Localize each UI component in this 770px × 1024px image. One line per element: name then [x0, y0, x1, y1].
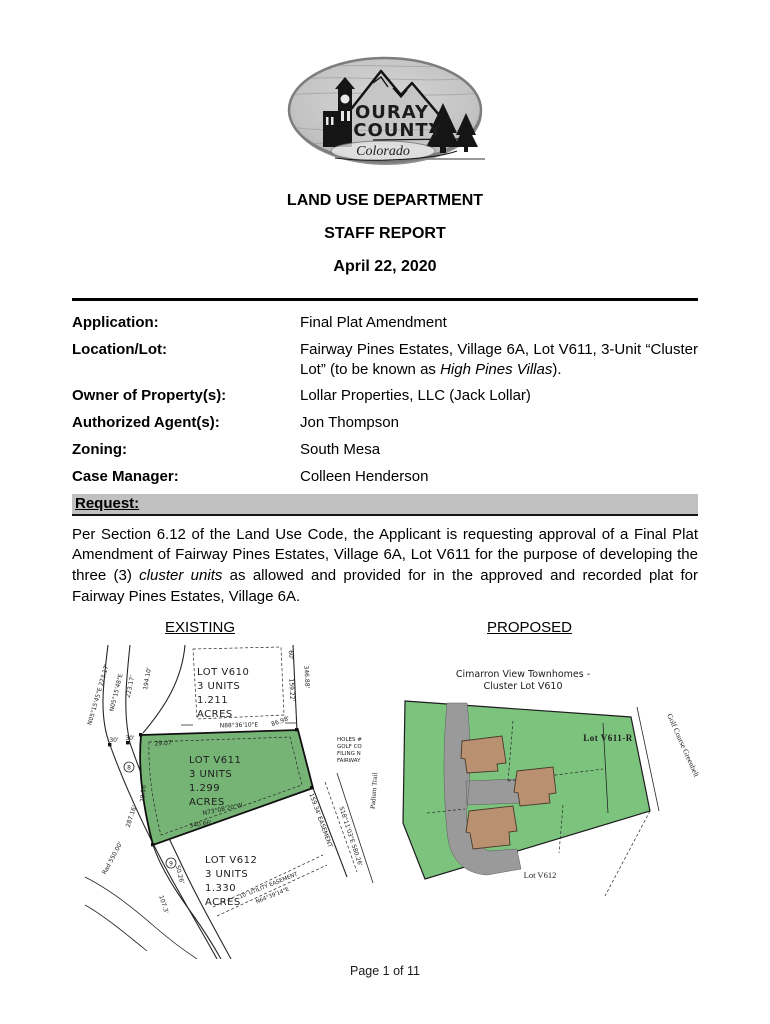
- info-row-case-manager: Case Manager: Colleen Henderson: [72, 467, 698, 487]
- info-label: Application:: [72, 313, 300, 333]
- lot-v612-acres: ACRES: [205, 897, 241, 908]
- existing-map-heading: EXISTING: [165, 619, 235, 636]
- info-value: Colleen Henderson: [300, 467, 698, 487]
- lot-v611-area: 1.299: [189, 783, 220, 794]
- dim-30b-label: 30': [125, 735, 135, 742]
- lot-v611-parcel: [140, 730, 313, 845]
- report-page: OURAY COUNTY Colorado LAND USE DEPARTMEN…: [0, 0, 770, 976]
- lot-v611-name: LOT V611: [189, 755, 241, 766]
- lot-v610-name: LOT V610: [197, 667, 249, 678]
- bearing-n05b-label: N05°15'48"E: [108, 673, 124, 712]
- dim-19410-label: 194.10': [142, 667, 153, 691]
- logo-container: OURAY COUNTY Colorado: [72, 0, 698, 170]
- info-label: Authorized Agent(s):: [72, 413, 300, 433]
- location-subdivision-name: High Pines Villas: [440, 361, 552, 378]
- section-divider: [72, 298, 698, 301]
- dim-1073-label: 107.3': [157, 895, 170, 915]
- easement-label: 159.34' EASEMENT: [307, 793, 333, 849]
- lot-v610-acres: ACRES: [197, 709, 233, 720]
- lot-v610-area: 1.211: [197, 695, 228, 706]
- ouray-county-logo-icon: OURAY COUNTY Colorado: [285, 55, 485, 170]
- info-label: Location/Lot:: [72, 340, 300, 380]
- side-note-line1: HOLES #: [337, 737, 362, 743]
- building-unit-2: [514, 767, 556, 806]
- existing-plat-map: 8 9 LOT V610 3 UNITS 1.211 ACRES LOT V61…: [85, 645, 397, 959]
- request-cluster-units: cluster units: [139, 567, 222, 584]
- info-value: Jon Thompson: [300, 413, 698, 433]
- dim-2907-label: 29.07': [154, 740, 174, 748]
- lot-v611-units: 3 UNITS: [189, 769, 232, 780]
- info-value: Lollar Properties, LLC (Jack Lollar): [300, 386, 698, 406]
- info-label: Owner of Property(s):: [72, 386, 300, 406]
- report-date: April 22, 2020: [72, 258, 698, 276]
- logo-state-name: Colorado: [356, 144, 410, 159]
- info-label: Case Manager:: [72, 467, 300, 487]
- info-row-application: Application: Final Plat Amendment: [72, 313, 698, 333]
- location-text-end: ).: [552, 361, 561, 378]
- info-row-owner: Owner of Property(s): Lollar Properties,…: [72, 386, 698, 406]
- request-paragraph: Per Section 6.12 of the Land Use Code, t…: [72, 525, 698, 608]
- proposed-site-plan: Cimarron View Townhomes - Cluster Lot V6…: [365, 663, 710, 915]
- road-ref-9: 9: [169, 861, 173, 868]
- info-value: Final Plat Amendment: [300, 313, 698, 333]
- info-value: Fairway Pines Estates, Village 6A, Lot V…: [300, 340, 698, 380]
- info-row-agent: Authorized Agent(s): Jon Thompson: [72, 413, 698, 433]
- lot-v612-name: LOT V612: [205, 855, 257, 866]
- lot-v611r-label: Lot V611-R: [583, 733, 633, 743]
- proposed-map-heading: PROPOSED: [487, 619, 572, 636]
- dim-28716-label: 287.16': [125, 805, 139, 829]
- dim-rad-label: Rad 550.00': [101, 841, 124, 876]
- greenbelt-label: Golf Course Greenbelt: [665, 712, 701, 779]
- dim-15922-label: 159.22': [287, 679, 295, 702]
- side-note-line4: FAIRWAY: [337, 758, 361, 764]
- page-footer: Page 1 of 11: [0, 964, 770, 978]
- building-unit-3: [466, 806, 517, 849]
- proposed-title-line1: Cimarron View Townhomes -: [456, 669, 590, 680]
- proposed-title-line2: Cluster Lot V610: [483, 681, 562, 692]
- lot-v612-units: 3 UNITS: [205, 869, 248, 880]
- report-type-heading: STAFF REPORT: [72, 225, 698, 243]
- dim-8698-label: 86.98': [270, 715, 290, 728]
- lot-v610-units: 3 UNITS: [197, 681, 240, 692]
- bearing-n05a-label: N05°15'45"E 223.17': [86, 663, 110, 726]
- street-label: Padium Trail: [369, 773, 380, 810]
- request-section-header: Request:: [72, 494, 698, 516]
- info-row-location: Location/Lot: Fairway Pines Estates, Vil…: [72, 340, 698, 380]
- road-ref-8: 8: [127, 765, 131, 772]
- lot-v612-area: 1.330: [205, 883, 236, 894]
- bearing-n88-label: N88°36'10"E: [220, 722, 259, 730]
- dim-60-label: 60': [287, 650, 294, 660]
- info-row-zoning: Zoning: South Mesa: [72, 440, 698, 460]
- lot-v612-label: Lot V612: [524, 870, 557, 880]
- side-note-line2: GOLF CO: [337, 744, 362, 750]
- info-label: Zoning:: [72, 440, 300, 460]
- logo-county-name-2: COUNTY: [353, 120, 443, 141]
- dim-346-label: 346.88': [302, 666, 310, 689]
- case-info-table: Application: Final Plat Amendment Locati…: [72, 313, 698, 487]
- maps-row: 8 9 LOT V610 3 UNITS 1.211 ACRES LOT V61…: [72, 641, 698, 976]
- department-heading: LAND USE DEPARTMENT: [72, 192, 698, 210]
- map-headings-row: EXISTING PROPOSED: [72, 619, 698, 641]
- side-note-line3: FILING N: [337, 751, 361, 757]
- info-value: South Mesa: [300, 440, 698, 460]
- dim-30a-label: 30': [109, 737, 119, 744]
